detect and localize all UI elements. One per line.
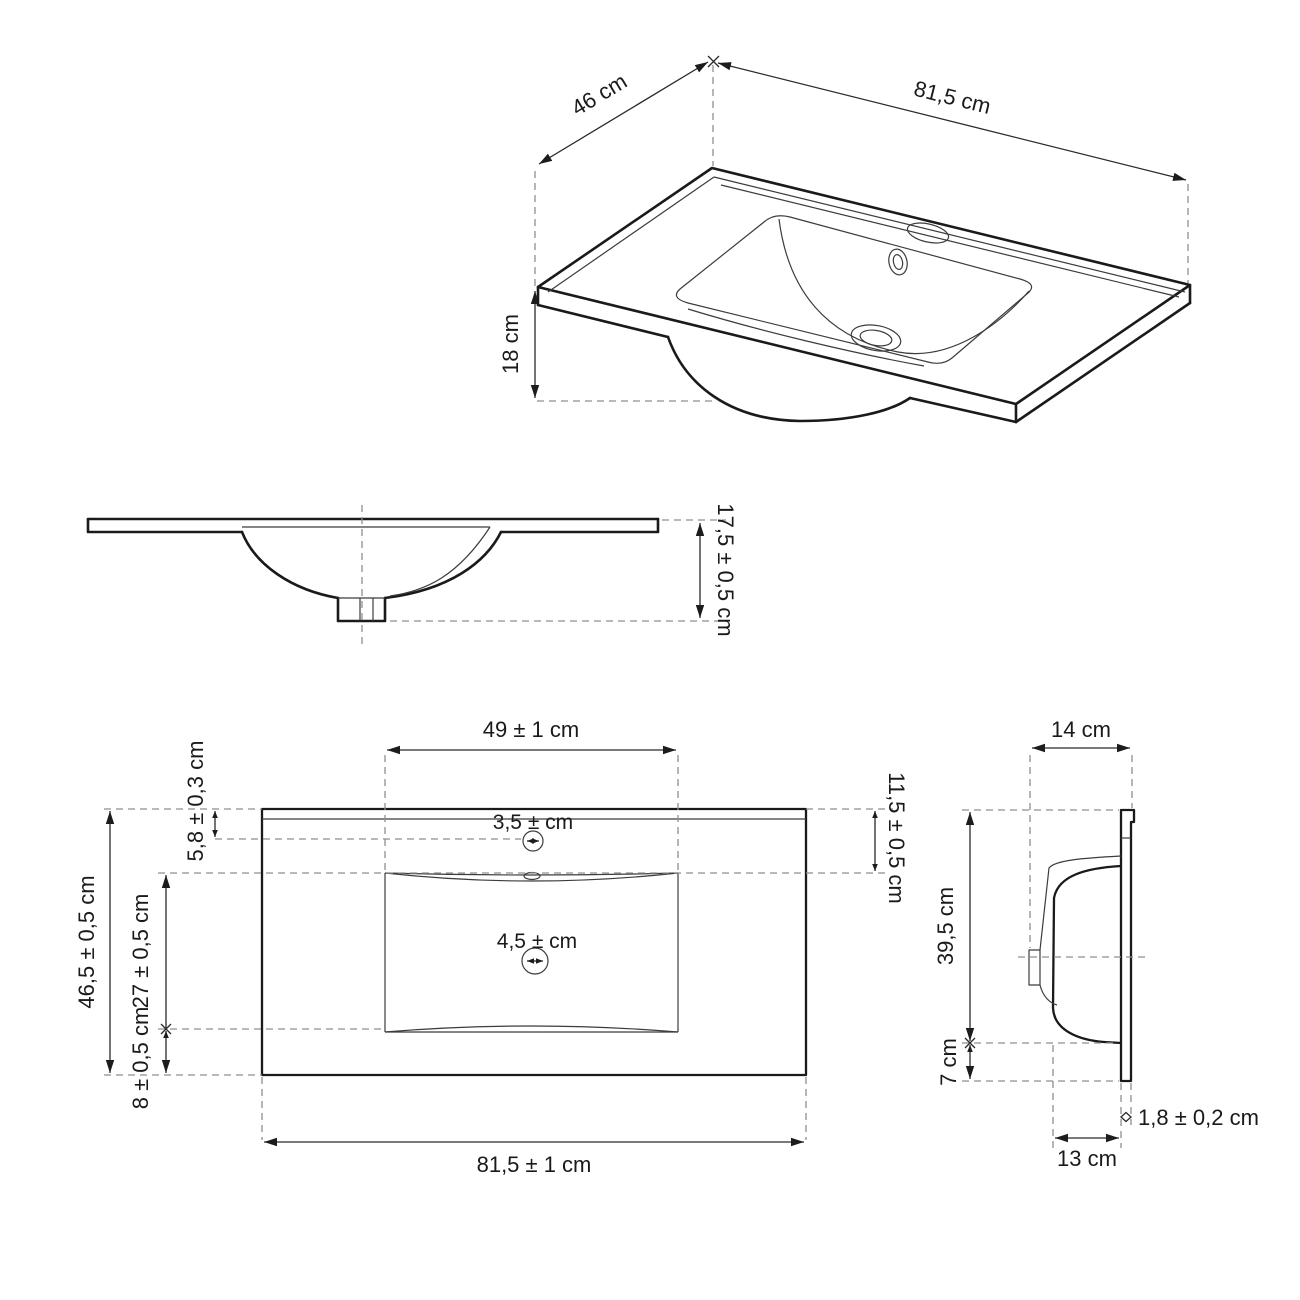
dim-drain-hole-label: 4,5 ± cm bbox=[497, 930, 577, 953]
sink-body-side-section bbox=[1018, 810, 1145, 1081]
technical-drawing: 46 cm 81,5 cm 18 cm bbox=[0, 0, 1300, 1300]
dimension-front-margin-8: 8 ± 0,5 cm bbox=[128, 1007, 171, 1110]
front-section-view: 17,5 ± 0,5 cm bbox=[88, 503, 738, 648]
dimension-basin-width-49: 49 ± 1 cm bbox=[387, 717, 676, 750]
dim-section-height-label: 17,5 ± 0,5 cm bbox=[713, 503, 738, 636]
dim-back-margin-label: 11,5 ± 0,5 cm bbox=[884, 772, 909, 904]
dim-basin-depth-label: 27 ± 0,5 cm bbox=[128, 894, 153, 1009]
dimension-height-18: 18 cm bbox=[498, 291, 715, 401]
isometric-view: 46 cm 81,5 cm 18 cm bbox=[498, 56, 1190, 422]
dimension-bottom-depth-13: 13 cm bbox=[1055, 1138, 1119, 1171]
dim-total-depth-label: 46,5 ± 0,5 cm bbox=[74, 875, 99, 1008]
dimension-total-width-815: 81,5 ± 1 cm bbox=[264, 1142, 804, 1177]
dimension-bottom-height-7: 7 cm bbox=[936, 1038, 975, 1086]
drawing-canvas: 46 cm 81,5 cm 18 cm bbox=[0, 0, 1300, 1300]
dim-top-depth-label: 14 cm bbox=[1051, 717, 1111, 742]
dimension-total-depth-465: 46,5 ± 0,5 cm bbox=[74, 811, 110, 1073]
dimension-top-depth-14: 14 cm bbox=[1032, 717, 1130, 748]
sink-body-isometric bbox=[538, 168, 1190, 422]
dimension-depth-46: 46 cm bbox=[535, 56, 719, 286]
side-section-view: 14 cm 39,5 cm 7 cm 13 cm 1,8 ± 0,2 cm bbox=[933, 717, 1259, 1171]
dim-bottom-height-label: 7 cm bbox=[936, 1038, 961, 1086]
dimension-width-815: 81,5 cm bbox=[718, 63, 1188, 283]
dim-basin-width-label: 49 ± 1 cm bbox=[483, 717, 579, 742]
dim-height-label: 18 cm bbox=[498, 314, 523, 374]
dimension-basin-depth-27: 27 ± 0,5 cm bbox=[128, 875, 166, 1029]
dim-width-label: 81,5 cm bbox=[911, 76, 993, 119]
dim-thickness-label: 1,8 ± 0,2 cm bbox=[1138, 1105, 1259, 1130]
overflow-hole-iso bbox=[886, 247, 909, 276]
sink-body-front-section bbox=[88, 505, 658, 648]
dim-total-width-label: 81,5 ± 1 cm bbox=[477, 1152, 592, 1177]
dimension-total-height-175: 17,5 ± 0,5 cm bbox=[390, 503, 738, 636]
dimension-faucet-setback-58: 5,8 ± 0,3 cm bbox=[183, 741, 215, 862]
dim-depth-label: 46 cm bbox=[567, 68, 631, 120]
dim-front-margin-label: 8 ± 0,5 cm bbox=[128, 1007, 153, 1110]
dim-side-height-label: 39,5 cm bbox=[933, 887, 958, 965]
dimension-back-margin-115: 11,5 ± 0,5 cm bbox=[875, 772, 909, 904]
dimension-side-height-395: 39,5 cm bbox=[933, 812, 970, 1041]
plan-view: 49 ± 1 cm 81,5 ± 1 cm 46,5 ± 0,5 cm 5,8 … bbox=[74, 717, 909, 1177]
side-dashed-references bbox=[962, 755, 1132, 1148]
dimension-thickness-18: 1,8 ± 0,2 cm bbox=[1121, 1105, 1259, 1130]
dim-faucet-setback-label: 5,8 ± 0,3 cm bbox=[183, 741, 208, 862]
dim-bottom-depth-label: 13 cm bbox=[1057, 1146, 1117, 1171]
dim-faucet-hole-label: 3,5 ± cm bbox=[493, 811, 573, 834]
